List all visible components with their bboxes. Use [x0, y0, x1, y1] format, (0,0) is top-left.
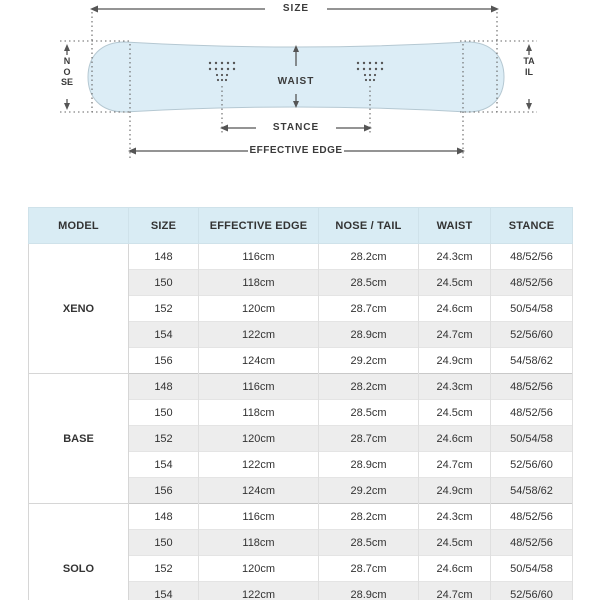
- spec-cell: 122cm: [199, 452, 319, 478]
- table-row: XENO148116cm28.2cm24.3cm48/52/56: [29, 244, 573, 270]
- spec-cell: 24.7cm: [419, 452, 491, 478]
- spec-cell: 50/54/58: [491, 556, 573, 582]
- spec-cell: 154: [129, 322, 199, 348]
- spec-cell: 28.2cm: [319, 504, 419, 530]
- spec-cell: 28.5cm: [319, 270, 419, 296]
- model-cell: SOLO: [29, 504, 129, 600]
- column-header-stance: STANCE: [491, 208, 573, 244]
- spec-cell: 48/52/56: [491, 270, 573, 296]
- spec-cell: 24.3cm: [419, 244, 491, 270]
- header-row: MODEL SIZE EFFECTIVE EDGE NOSE / TAIL WA…: [29, 208, 573, 244]
- spec-cell: 152: [129, 426, 199, 452]
- spec-cell: 29.2cm: [319, 348, 419, 374]
- spec-cell: 28.5cm: [319, 530, 419, 556]
- spec-cell: 154: [129, 452, 199, 478]
- spec-cell: 116cm: [199, 244, 319, 270]
- spec-cell: 48/52/56: [491, 504, 573, 530]
- board-diagram: SIZE WAIST STANCE EFFECTIVE EDGE NOSE TA…: [0, 0, 600, 195]
- table-row: SOLO148116cm28.2cm24.3cm48/52/56: [29, 504, 573, 530]
- snowboard-illustration: [0, 0, 600, 195]
- tail-label: TAIL: [523, 56, 535, 77]
- spec-cell: 152: [129, 296, 199, 322]
- spec-cell: 28.7cm: [319, 426, 419, 452]
- model-cell: BASE: [29, 374, 129, 504]
- spec-cell: 24.5cm: [419, 400, 491, 426]
- spec-cell: 24.6cm: [419, 296, 491, 322]
- spec-cell: 118cm: [199, 400, 319, 426]
- spec-cell: 28.2cm: [319, 374, 419, 400]
- spec-cell: 150: [129, 270, 199, 296]
- spec-cell: 48/52/56: [491, 530, 573, 556]
- spec-cell: 28.2cm: [319, 244, 419, 270]
- spec-cell: 24.6cm: [419, 426, 491, 452]
- column-header-effective-edge: EFFECTIVE EDGE: [199, 208, 319, 244]
- size-label: SIZE: [246, 3, 346, 14]
- spec-cell: 48/52/56: [491, 244, 573, 270]
- column-header-model: MODEL: [29, 208, 129, 244]
- spec-cell: 124cm: [199, 478, 319, 504]
- spec-table-body: XENO148116cm28.2cm24.3cm48/52/56150118cm…: [29, 244, 573, 600]
- spec-cell: 120cm: [199, 426, 319, 452]
- spec-cell: 24.7cm: [419, 582, 491, 600]
- spec-cell: 150: [129, 530, 199, 556]
- spec-cell: 52/56/60: [491, 582, 573, 600]
- column-header-waist: WAIST: [419, 208, 491, 244]
- spec-cell: 156: [129, 348, 199, 374]
- spec-cell: 24.7cm: [419, 322, 491, 348]
- spec-cell: 52/56/60: [491, 452, 573, 478]
- spec-cell: 48/52/56: [491, 400, 573, 426]
- size-chart-page: SIZE WAIST STANCE EFFECTIVE EDGE NOSE TA…: [0, 0, 600, 600]
- spec-cell: 118cm: [199, 270, 319, 296]
- spec-cell: 24.6cm: [419, 556, 491, 582]
- stance-label: STANCE: [246, 122, 346, 133]
- spec-cell: 118cm: [199, 530, 319, 556]
- spec-cell: 150: [129, 400, 199, 426]
- spec-cell: 28.9cm: [319, 322, 419, 348]
- spec-cell: 116cm: [199, 504, 319, 530]
- spec-cell: 28.9cm: [319, 582, 419, 600]
- spec-cell: 122cm: [199, 582, 319, 600]
- spec-cell: 24.3cm: [419, 374, 491, 400]
- spec-table: MODEL SIZE EFFECTIVE EDGE NOSE / TAIL WA…: [28, 207, 573, 600]
- column-header-size: SIZE: [129, 208, 199, 244]
- spec-table-wrap: MODEL SIZE EFFECTIVE EDGE NOSE / TAIL WA…: [0, 195, 600, 600]
- spec-cell: 148: [129, 504, 199, 530]
- spec-cell: 24.9cm: [419, 348, 491, 374]
- spec-cell: 24.5cm: [419, 270, 491, 296]
- model-cell: XENO: [29, 244, 129, 374]
- spec-cell: 50/54/58: [491, 296, 573, 322]
- spec-cell: 24.3cm: [419, 504, 491, 530]
- spec-cell: 29.2cm: [319, 478, 419, 504]
- spec-cell: 120cm: [199, 556, 319, 582]
- spec-cell: 148: [129, 374, 199, 400]
- spec-cell: 152: [129, 556, 199, 582]
- spec-cell: 48/52/56: [491, 374, 573, 400]
- spec-cell: 28.7cm: [319, 556, 419, 582]
- spec-cell: 154: [129, 582, 199, 600]
- spec-cell: 28.9cm: [319, 452, 419, 478]
- spec-cell: 120cm: [199, 296, 319, 322]
- spec-cell: 116cm: [199, 374, 319, 400]
- spec-cell: 54/58/62: [491, 478, 573, 504]
- spec-cell: 124cm: [199, 348, 319, 374]
- spec-cell: 28.7cm: [319, 296, 419, 322]
- spec-cell: 50/54/58: [491, 426, 573, 452]
- nose-label: NOSE: [61, 56, 73, 88]
- spec-cell: 24.9cm: [419, 478, 491, 504]
- spec-cell: 122cm: [199, 322, 319, 348]
- spec-cell: 156: [129, 478, 199, 504]
- effective-edge-label: EFFECTIVE EDGE: [221, 145, 371, 156]
- table-row: BASE148116cm28.2cm24.3cm48/52/56: [29, 374, 573, 400]
- column-header-nose-tail: NOSE / TAIL: [319, 208, 419, 244]
- spec-cell: 148: [129, 244, 199, 270]
- waist-label: WAIST: [246, 76, 346, 87]
- spec-cell: 52/56/60: [491, 322, 573, 348]
- spec-cell: 54/58/62: [491, 348, 573, 374]
- spec-cell: 24.5cm: [419, 530, 491, 556]
- spec-cell: 28.5cm: [319, 400, 419, 426]
